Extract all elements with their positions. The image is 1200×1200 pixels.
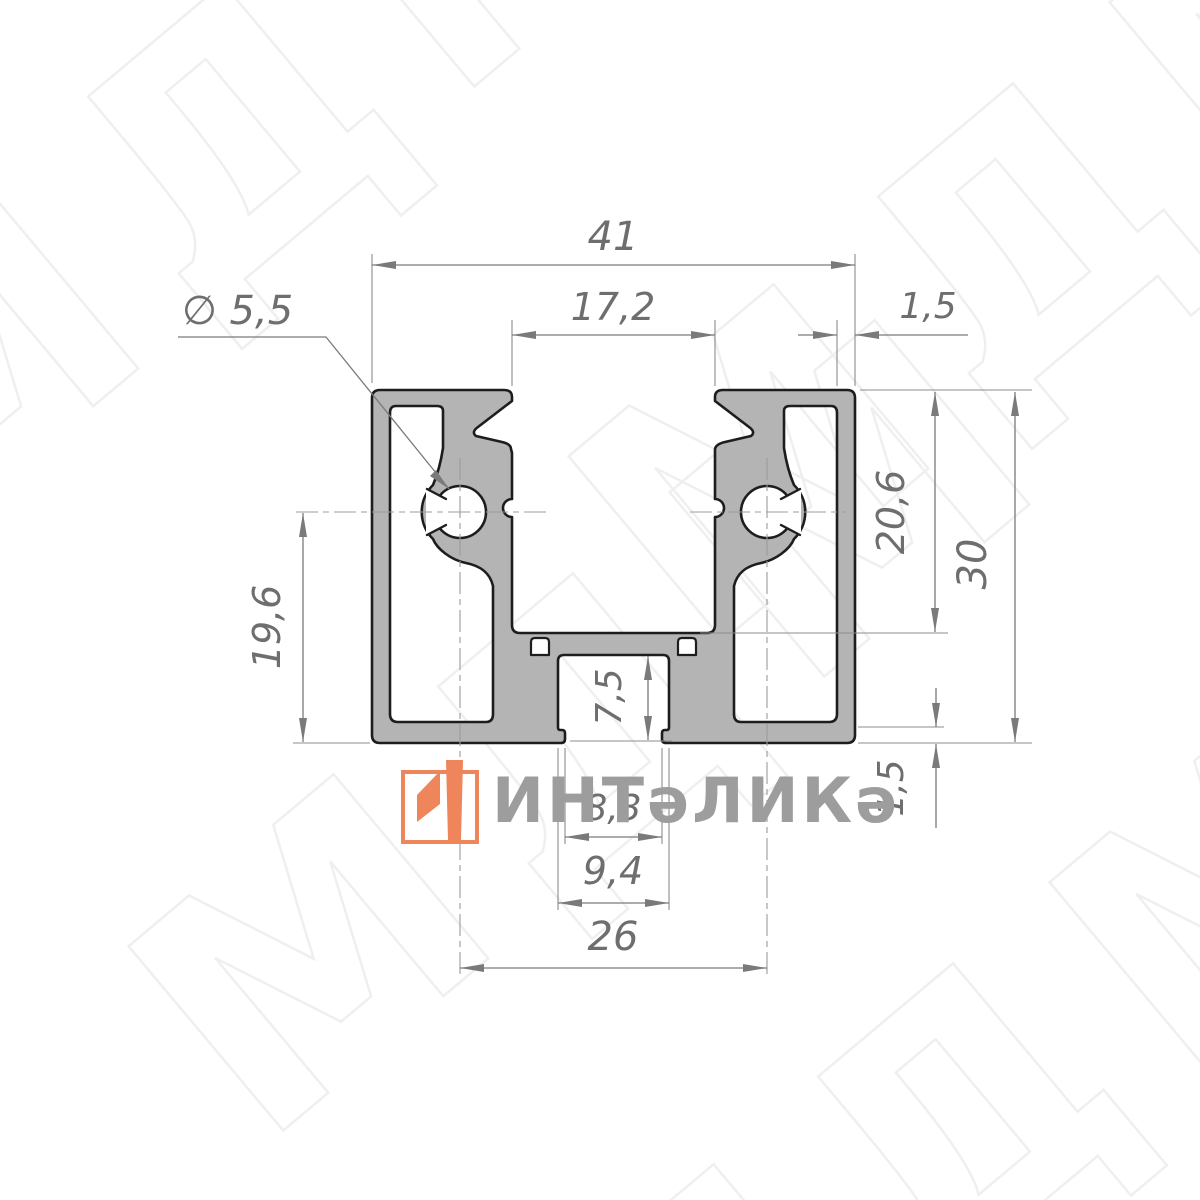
dim-right-wall: 1,5 [899,286,956,327]
dim-total-height: 30 [950,539,996,590]
logo-icon-bar [446,760,463,840]
profile-drawing-canvas: МДМ МДМ МДМ МДМ [0,0,1200,1200]
dim-total-width: 41 [588,214,639,260]
logo-icon [403,760,477,842]
dim-channel-width: 17,2 [571,285,656,329]
dim-hole-diameter: ∅ 5,5 [182,288,293,334]
dim-slot-height: 7,5 [589,668,630,725]
dim-channel-depth: 20,6 [869,470,913,555]
watermark-pattern: МДМ МДМ МДМ МДМ [0,0,1200,1200]
dim-hole-center-to-bottom: 19,6 [245,585,289,670]
logo-text: ИНТәЛИКә [492,764,900,837]
web-relief-left [531,638,549,655]
dim-slot-width: 9,4 [583,849,643,893]
technical-drawing-page: МДМ МДМ МДМ МДМ [0,0,1200,1200]
web-relief-right [678,638,696,655]
logo: ИНТәЛИКә [403,760,900,842]
dim-hole-spacing: 26 [588,914,639,960]
